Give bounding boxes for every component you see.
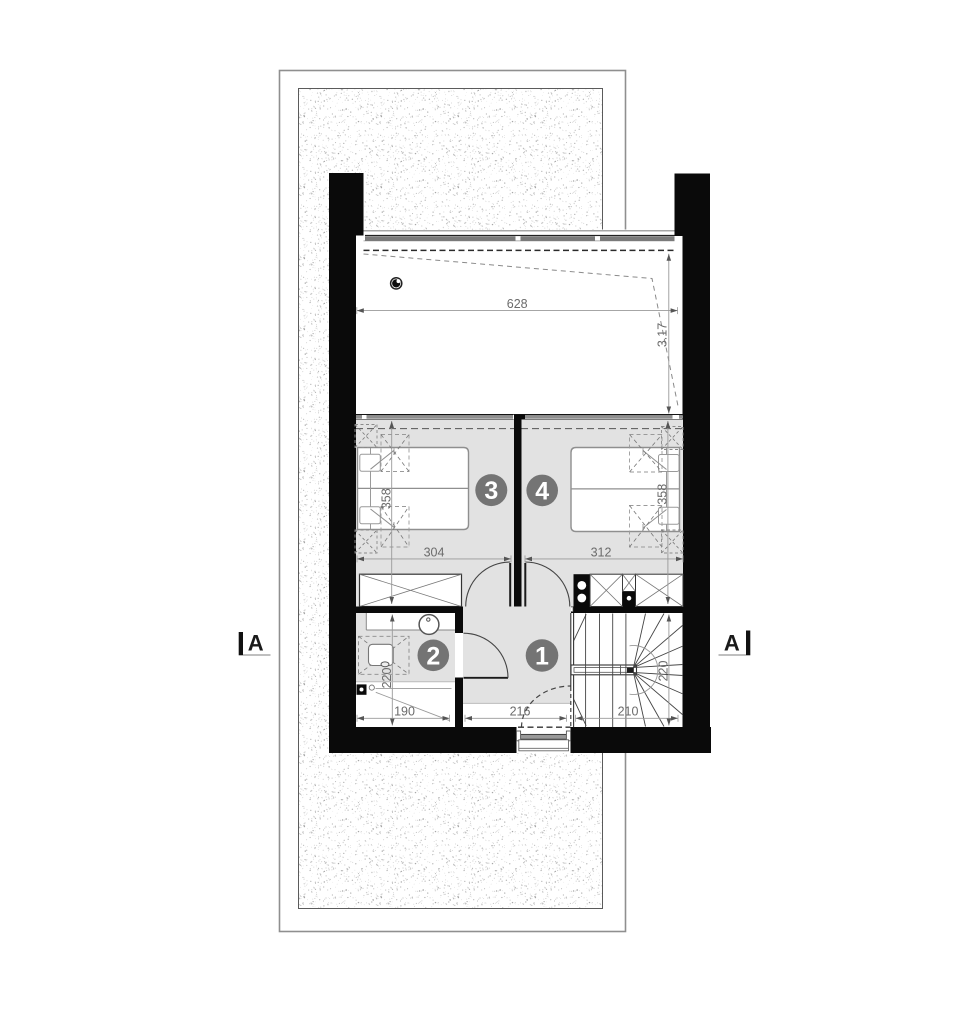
svg-text:312: 312 bbox=[591, 545, 612, 559]
svg-text:A: A bbox=[724, 630, 740, 655]
svg-text:3: 3 bbox=[484, 477, 498, 505]
svg-text:358: 358 bbox=[656, 484, 670, 505]
svg-text:304: 304 bbox=[424, 545, 445, 559]
svg-text:1: 1 bbox=[535, 643, 549, 671]
svg-text:628: 628 bbox=[507, 297, 528, 311]
svg-text:190: 190 bbox=[394, 704, 415, 718]
svg-text:220: 220 bbox=[380, 668, 394, 689]
svg-text:A: A bbox=[248, 630, 264, 655]
svg-text:216: 216 bbox=[510, 704, 531, 718]
svg-text:220: 220 bbox=[656, 661, 670, 682]
svg-text:210: 210 bbox=[618, 704, 639, 718]
svg-text:358: 358 bbox=[379, 488, 393, 509]
svg-text:4: 4 bbox=[535, 477, 549, 505]
svg-text:3.17: 3.17 bbox=[655, 323, 669, 347]
svg-text:2: 2 bbox=[426, 642, 440, 670]
